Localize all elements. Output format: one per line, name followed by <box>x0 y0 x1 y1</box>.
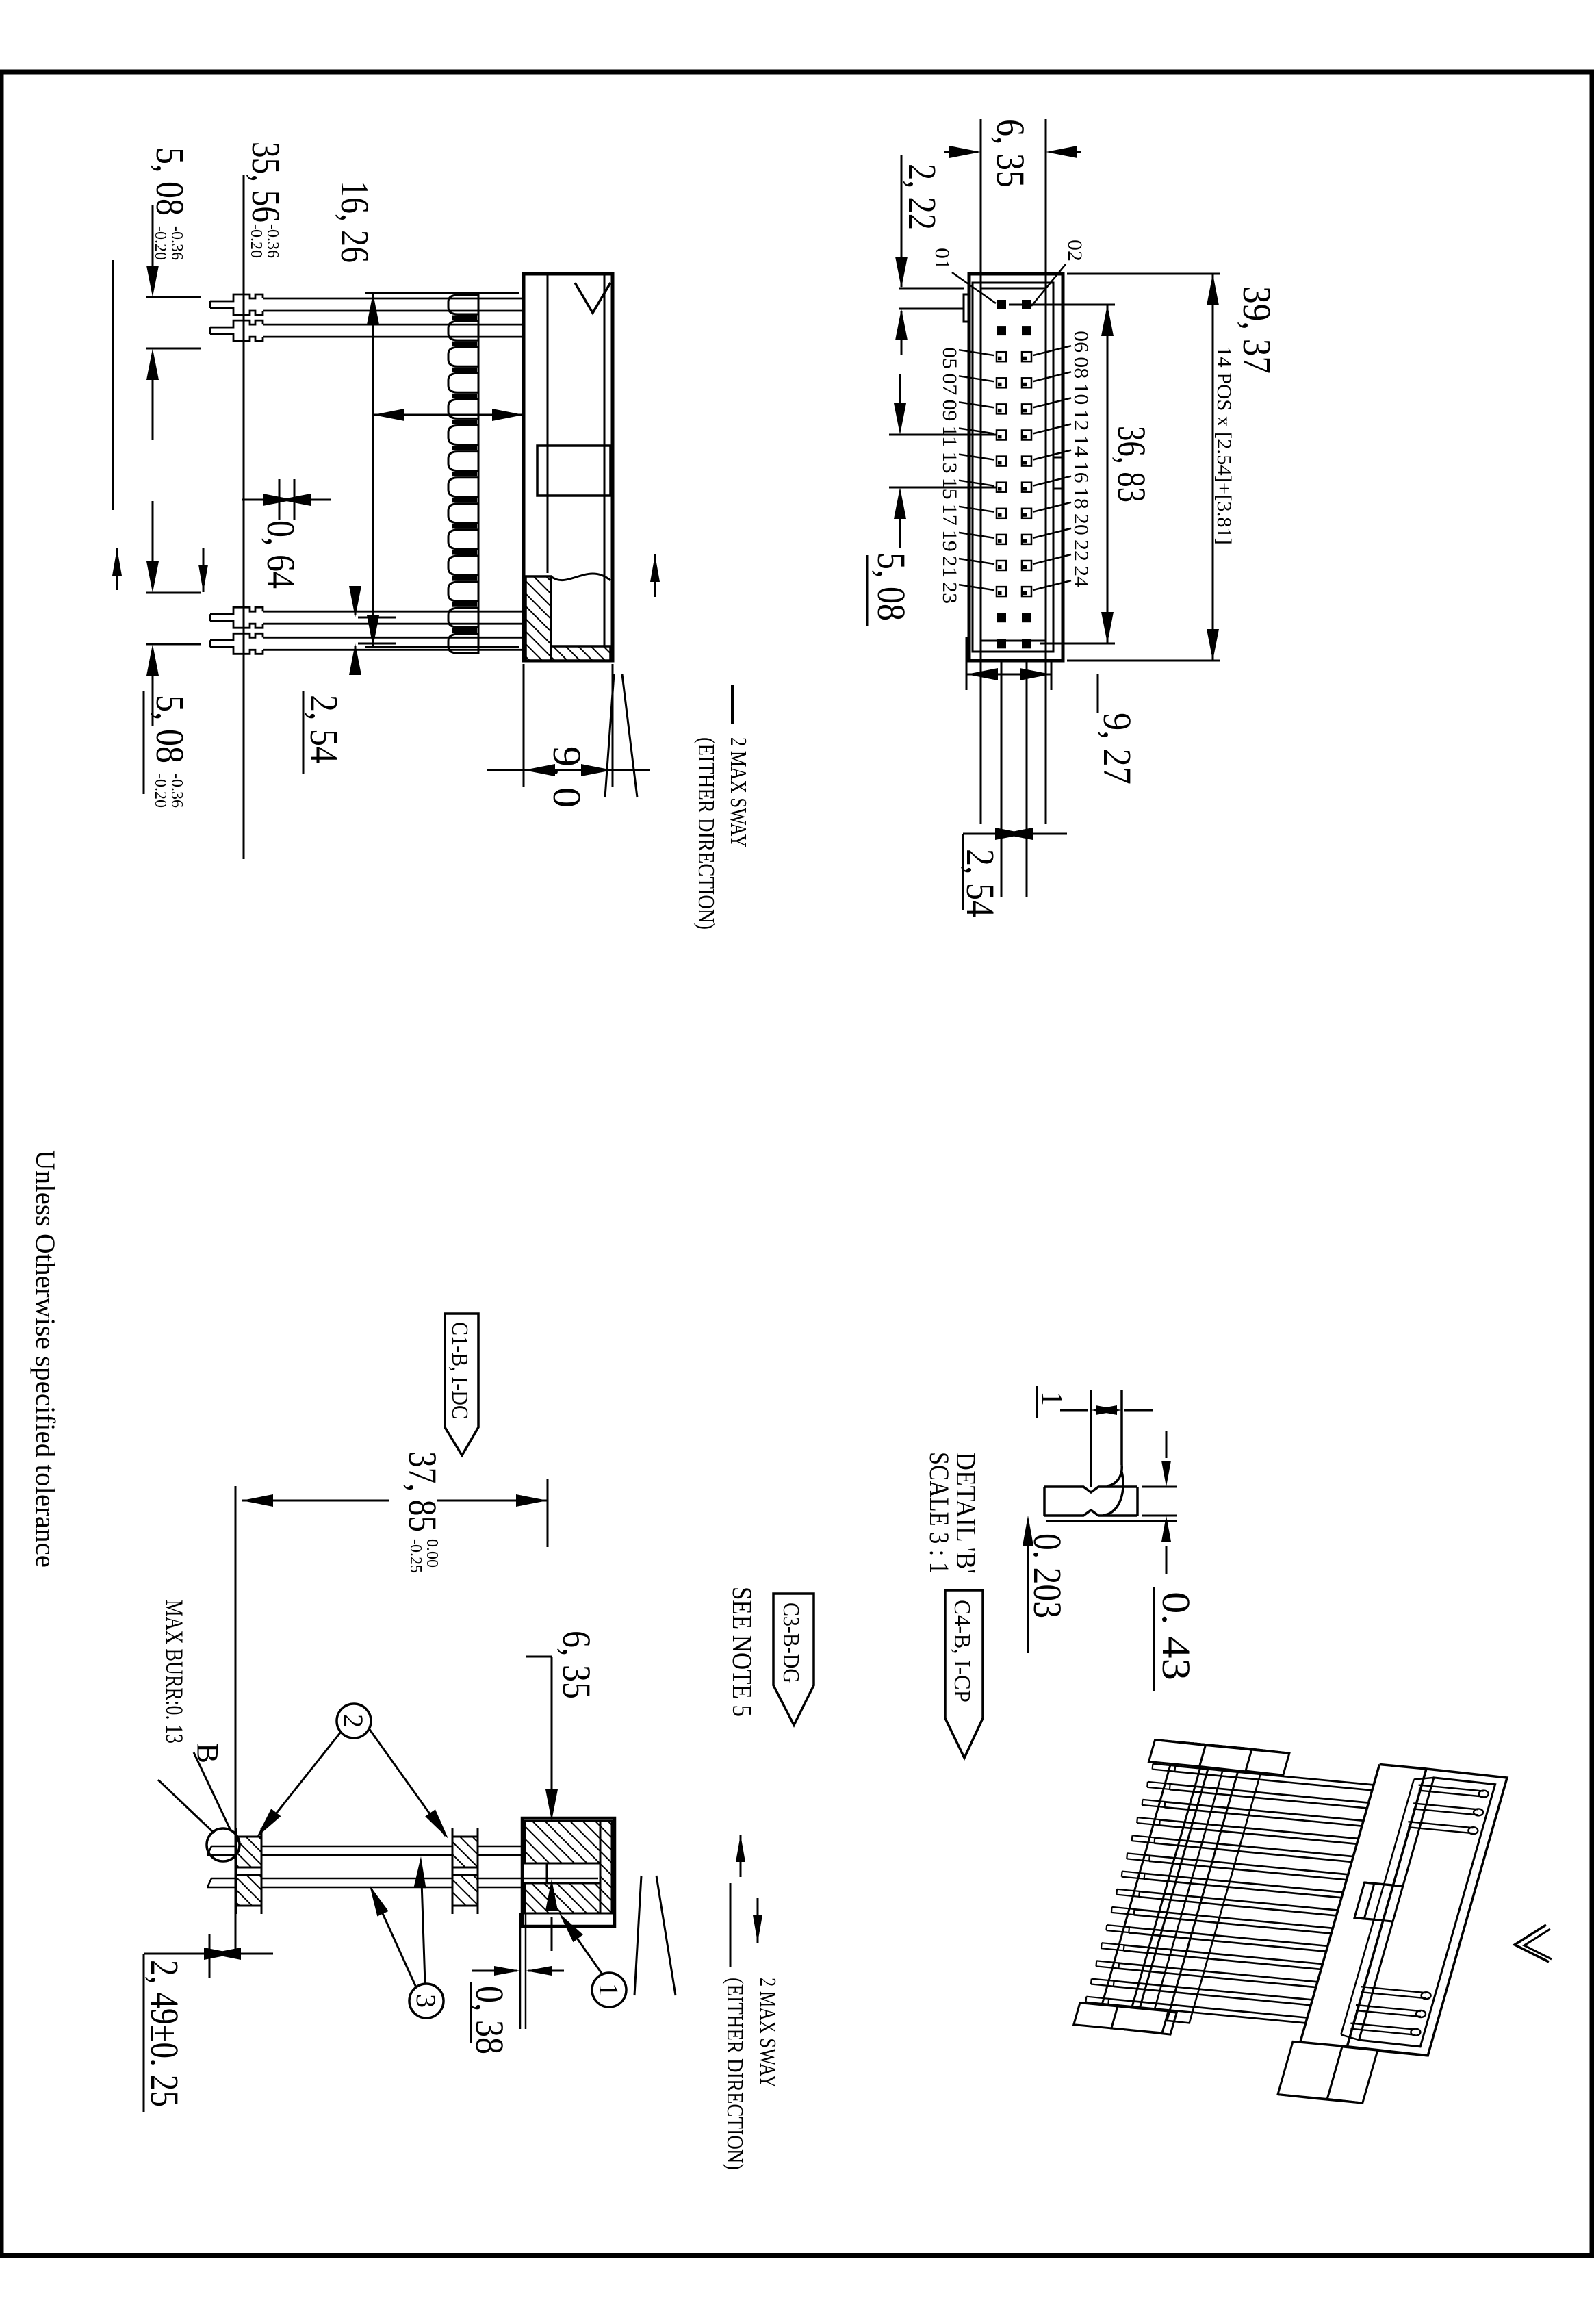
svg-text:0. 203: 0. 203 <box>1025 1533 1070 1618</box>
svg-text:3: 3 <box>411 1994 441 2008</box>
svg-text:-0.25: -0.25 <box>407 1539 424 1573</box>
svg-text:-0.36: -0.36 <box>168 774 185 808</box>
svg-text:16, 26: 16, 26 <box>333 181 377 263</box>
svg-text:07: 07 <box>938 373 961 395</box>
svg-text:21: 21 <box>938 556 961 578</box>
svg-text:08: 08 <box>1070 357 1092 379</box>
svg-text:16: 16 <box>1070 461 1092 483</box>
svg-text:0, 38: 0, 38 <box>467 1986 512 2054</box>
svg-text:02: 02 <box>1064 240 1086 261</box>
svg-text:MAX BURR:0. 13: MAX BURR:0. 13 <box>161 1600 188 1744</box>
svg-text:20: 20 <box>1070 513 1092 535</box>
svg-text:-0.20: -0.20 <box>151 774 169 808</box>
svg-text:11: 11 <box>938 426 961 448</box>
svg-text:5, 08: 5, 08 <box>148 147 192 216</box>
svg-text:(EITHER DIRECTION): (EITHER DIRECTION) <box>693 737 719 930</box>
svg-text:1: 1 <box>593 1983 624 1997</box>
svg-text:37, 85: 37, 85 <box>400 1451 445 1532</box>
svg-text:36, 83: 36, 83 <box>1109 426 1154 502</box>
svg-text:0, 64: 0, 64 <box>259 520 303 589</box>
svg-text:2: 2 <box>338 1714 369 1728</box>
svg-text:22: 22 <box>1070 539 1092 561</box>
svg-text:39, 37: 39, 37 <box>1235 286 1279 374</box>
svg-text:(EITHER DIRECTION): (EITHER DIRECTION) <box>722 1978 747 2170</box>
svg-text:13: 13 <box>938 452 961 474</box>
svg-text:2 MAX SWAY: 2 MAX SWAY <box>725 737 751 847</box>
svg-text:C1-B, I-DC: C1-B, I-DC <box>447 1322 472 1419</box>
svg-text:9, 27: 9, 27 <box>1095 713 1140 784</box>
svg-text:23: 23 <box>938 582 961 604</box>
svg-text:15: 15 <box>938 478 961 500</box>
svg-text:2 MAX SWAY: 2 MAX SWAY <box>755 1978 780 2088</box>
svg-text:24: 24 <box>1070 565 1092 587</box>
svg-text:17: 17 <box>938 504 961 526</box>
svg-text:-0.36: -0.36 <box>263 224 281 258</box>
svg-text:6, 35: 6, 35 <box>988 119 1033 188</box>
svg-text:2, 49±0. 25: 2, 49±0. 25 <box>142 1960 187 2107</box>
svg-text:2, 54: 2, 54 <box>958 849 1003 917</box>
svg-text:5, 08: 5, 08 <box>148 695 192 763</box>
svg-text:2, 54: 2, 54 <box>302 695 346 763</box>
svg-text:14 POS x [2.54]+[3.81]: 14 POS x [2.54]+[3.81] <box>1213 346 1235 545</box>
svg-text:35, 56: 35, 56 <box>244 142 288 222</box>
svg-text:19: 19 <box>938 530 961 552</box>
svg-text:SEE NOTE 5: SEE NOTE 5 <box>727 1587 758 1717</box>
svg-text:-0.20: -0.20 <box>151 226 169 260</box>
svg-text:09: 09 <box>938 399 961 421</box>
svg-text:10: 10 <box>1070 383 1092 405</box>
svg-text:0. 43: 0. 43 <box>1154 1592 1198 1681</box>
svg-text:9. 0: 9. 0 <box>545 746 589 808</box>
svg-text:DETAIL 'B': DETAIL 'B' <box>951 1452 981 1574</box>
svg-text:2, 22: 2, 22 <box>900 164 944 230</box>
svg-text:C3-B-DG: C3-B-DG <box>778 1602 804 1683</box>
svg-text:C4-B, I-CP: C4-B, I-CP <box>949 1600 975 1702</box>
svg-text:18: 18 <box>1070 487 1092 509</box>
svg-text:05: 05 <box>938 347 961 369</box>
svg-text:6, 35: 6, 35 <box>554 1631 599 1699</box>
svg-text:12: 12 <box>1070 409 1092 431</box>
svg-text:14: 14 <box>1070 435 1092 457</box>
svg-text:SCALE 3 : 1: SCALE 3 : 1 <box>924 1452 955 1574</box>
svg-text:1: 1 <box>1036 1391 1069 1406</box>
svg-text:06: 06 <box>1070 331 1092 353</box>
svg-text:5, 08: 5, 08 <box>869 552 914 621</box>
svg-text:B: B <box>191 1743 224 1763</box>
svg-text:-0.20: -0.20 <box>247 224 265 258</box>
svg-text:Unless Otherwise specified tol: Unless Otherwise specified tolerance <box>30 1150 61 1568</box>
svg-text:-0.36: -0.36 <box>168 226 185 260</box>
svg-text:01: 01 <box>931 248 953 270</box>
svg-text:0.00: 0.00 <box>423 1539 441 1568</box>
